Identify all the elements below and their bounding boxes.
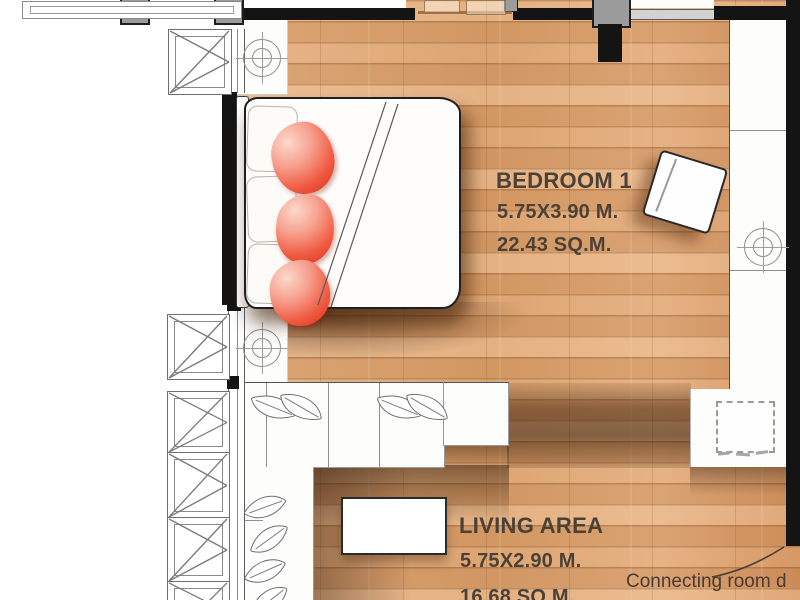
wall-top-right bbox=[714, 6, 786, 20]
casement-window-icon bbox=[167, 517, 230, 583]
built-in-wardrobe bbox=[729, 17, 787, 391]
sideboard-cabinet-step bbox=[443, 382, 509, 446]
wall-right bbox=[786, 0, 800, 546]
counter-line bbox=[245, 520, 263, 521]
right-band-shadow bbox=[690, 465, 788, 495]
upper-furniture bbox=[466, 0, 506, 15]
wall-top-mid bbox=[513, 8, 598, 20]
column-marker-icon bbox=[243, 329, 281, 367]
bedroom-size: 5.75X3.90 M. bbox=[497, 201, 618, 224]
balcony-railing-inner bbox=[30, 6, 234, 14]
wall-left bbox=[222, 92, 237, 305]
casement-window-icon bbox=[167, 314, 230, 380]
upper-furniture bbox=[424, 0, 460, 13]
casement-window-icon bbox=[168, 29, 232, 95]
structural-post-base bbox=[598, 24, 622, 62]
wardrobe-divider bbox=[730, 130, 787, 131]
bedroom-label: BEDROOM 1 bbox=[496, 168, 632, 194]
double-bed bbox=[236, 92, 466, 314]
column-marker-icon bbox=[243, 39, 281, 77]
wall-top-glass bbox=[629, 9, 715, 20]
cabinet-divider bbox=[328, 383, 329, 467]
wardrobe-divider bbox=[730, 270, 787, 271]
bedroom-area: 22.43 SQ.M. bbox=[497, 234, 611, 257]
casement-window-icon bbox=[167, 391, 230, 454]
casement-window-icon bbox=[167, 452, 230, 519]
coffee-table bbox=[341, 497, 447, 555]
living-label: LIVING AREA bbox=[459, 513, 603, 539]
bed-fold-lines bbox=[236, 92, 466, 314]
casement-window-icon bbox=[167, 581, 230, 600]
living-size: 5.75X2.90 M. bbox=[460, 550, 581, 573]
connecting-room-callout: Connecting room d bbox=[626, 571, 787, 593]
walkway-dark-floor bbox=[507, 383, 691, 468]
floor-plan: BEDROOM 1 5.75X3.90 M. 22.43 SQ.M. LIVIN… bbox=[0, 0, 800, 600]
wall-top-left bbox=[237, 8, 415, 20]
column-marker-icon bbox=[744, 228, 782, 266]
living-area-value: 16.68 SQ.M. bbox=[460, 586, 574, 600]
upper-counter-strip bbox=[627, 0, 714, 8]
hidden-appliance-dashed-box bbox=[716, 401, 775, 453]
